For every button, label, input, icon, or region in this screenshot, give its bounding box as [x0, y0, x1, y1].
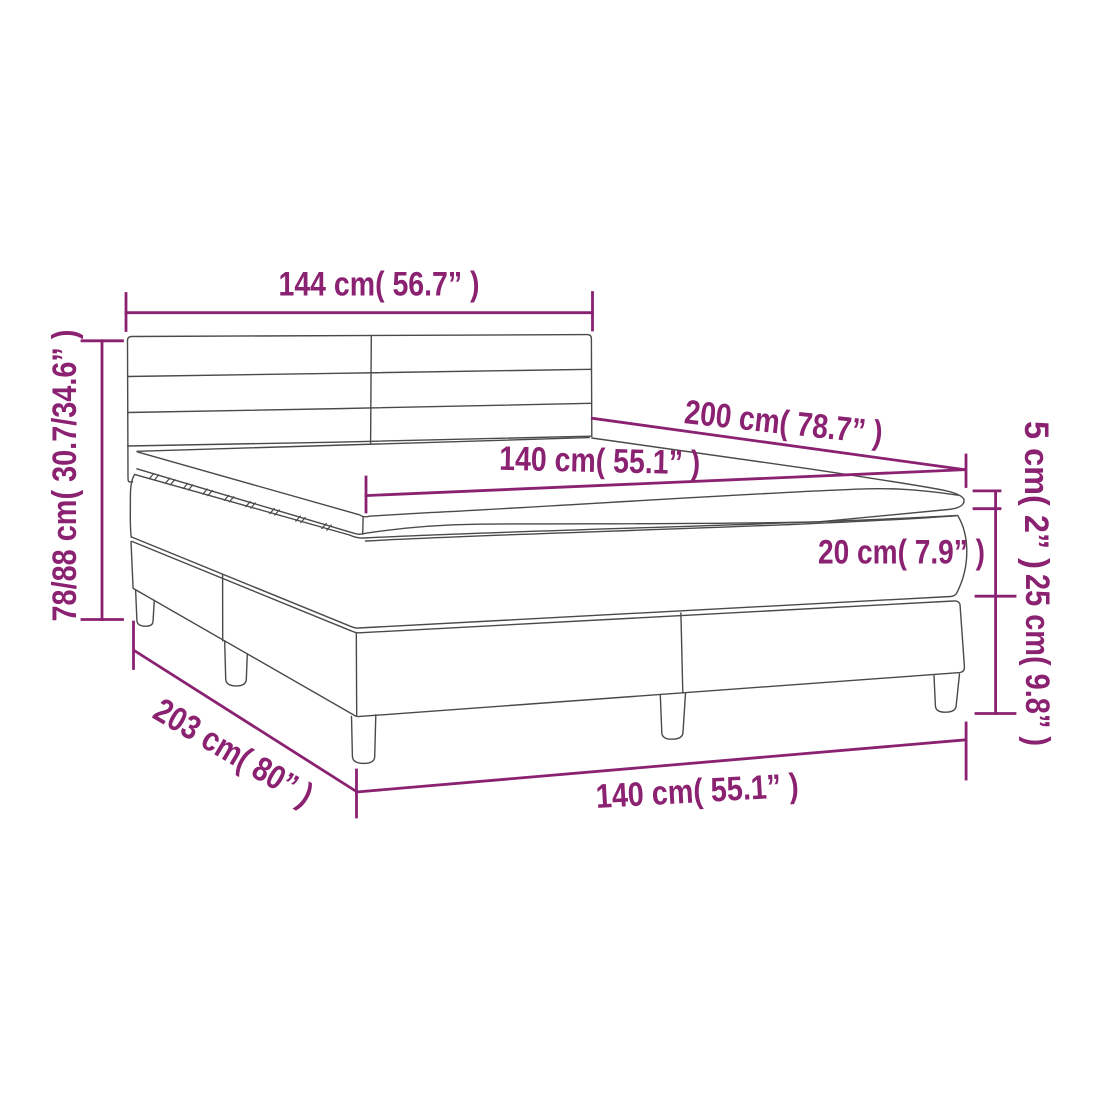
svg-text:5 cm( 2” ): 5 cm( 2” )	[1017, 421, 1055, 569]
svg-text:140 cm( 55.1” ): 140 cm( 55.1” )	[499, 440, 701, 483]
svg-text:20 cm( 7.9” ): 20 cm( 7.9” )	[818, 534, 985, 572]
svg-text:144 cm( 56.7” ): 144 cm( 56.7” )	[279, 266, 480, 304]
svg-text:25 cm( 9.8” ): 25 cm( 9.8” )	[1018, 574, 1056, 746]
svg-text:78/88 cm( 30.7/34.6” ): 78/88 cm( 30.7/34.6” )	[46, 330, 84, 622]
